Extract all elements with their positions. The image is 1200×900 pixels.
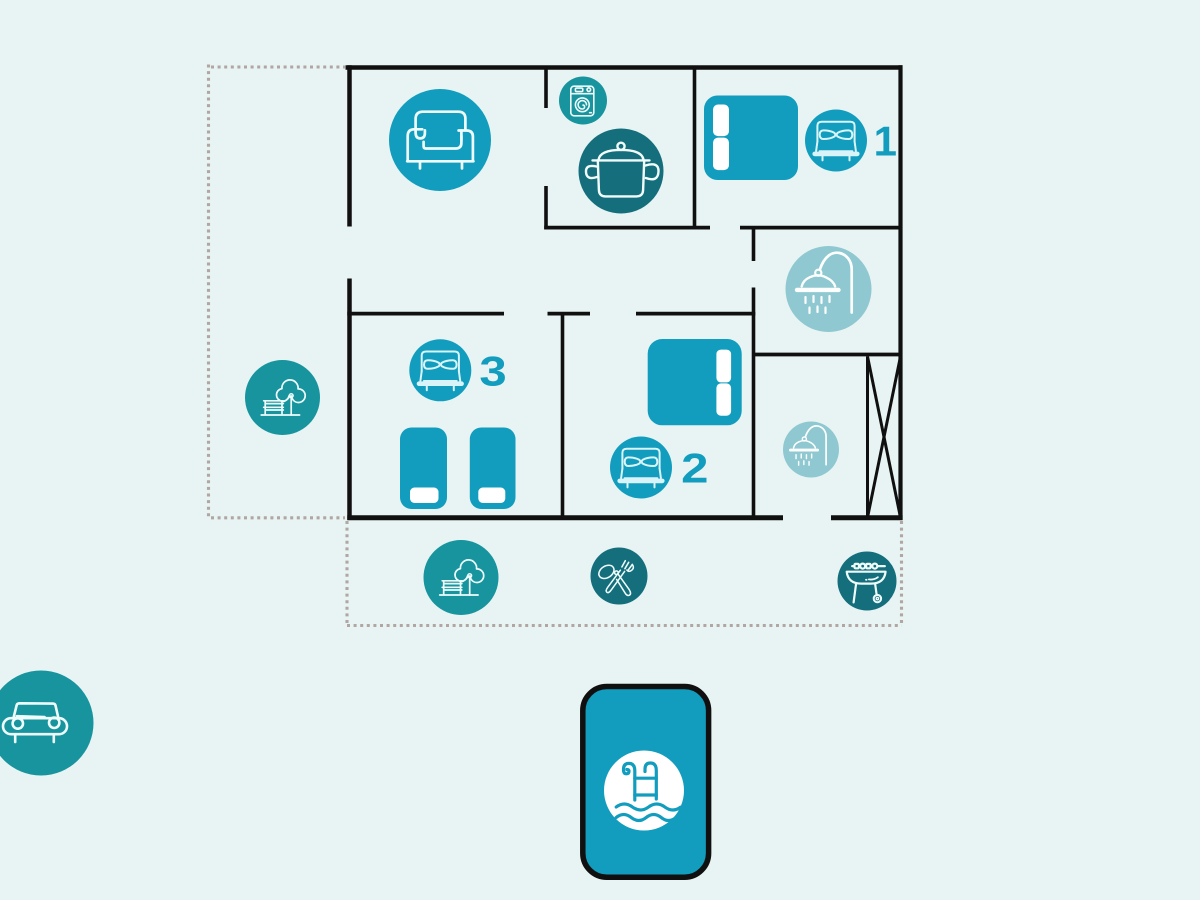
svg-text:1: 1 [874,117,897,164]
svg-text:2: 2 [681,445,708,492]
svg-text:3: 3 [479,348,506,395]
